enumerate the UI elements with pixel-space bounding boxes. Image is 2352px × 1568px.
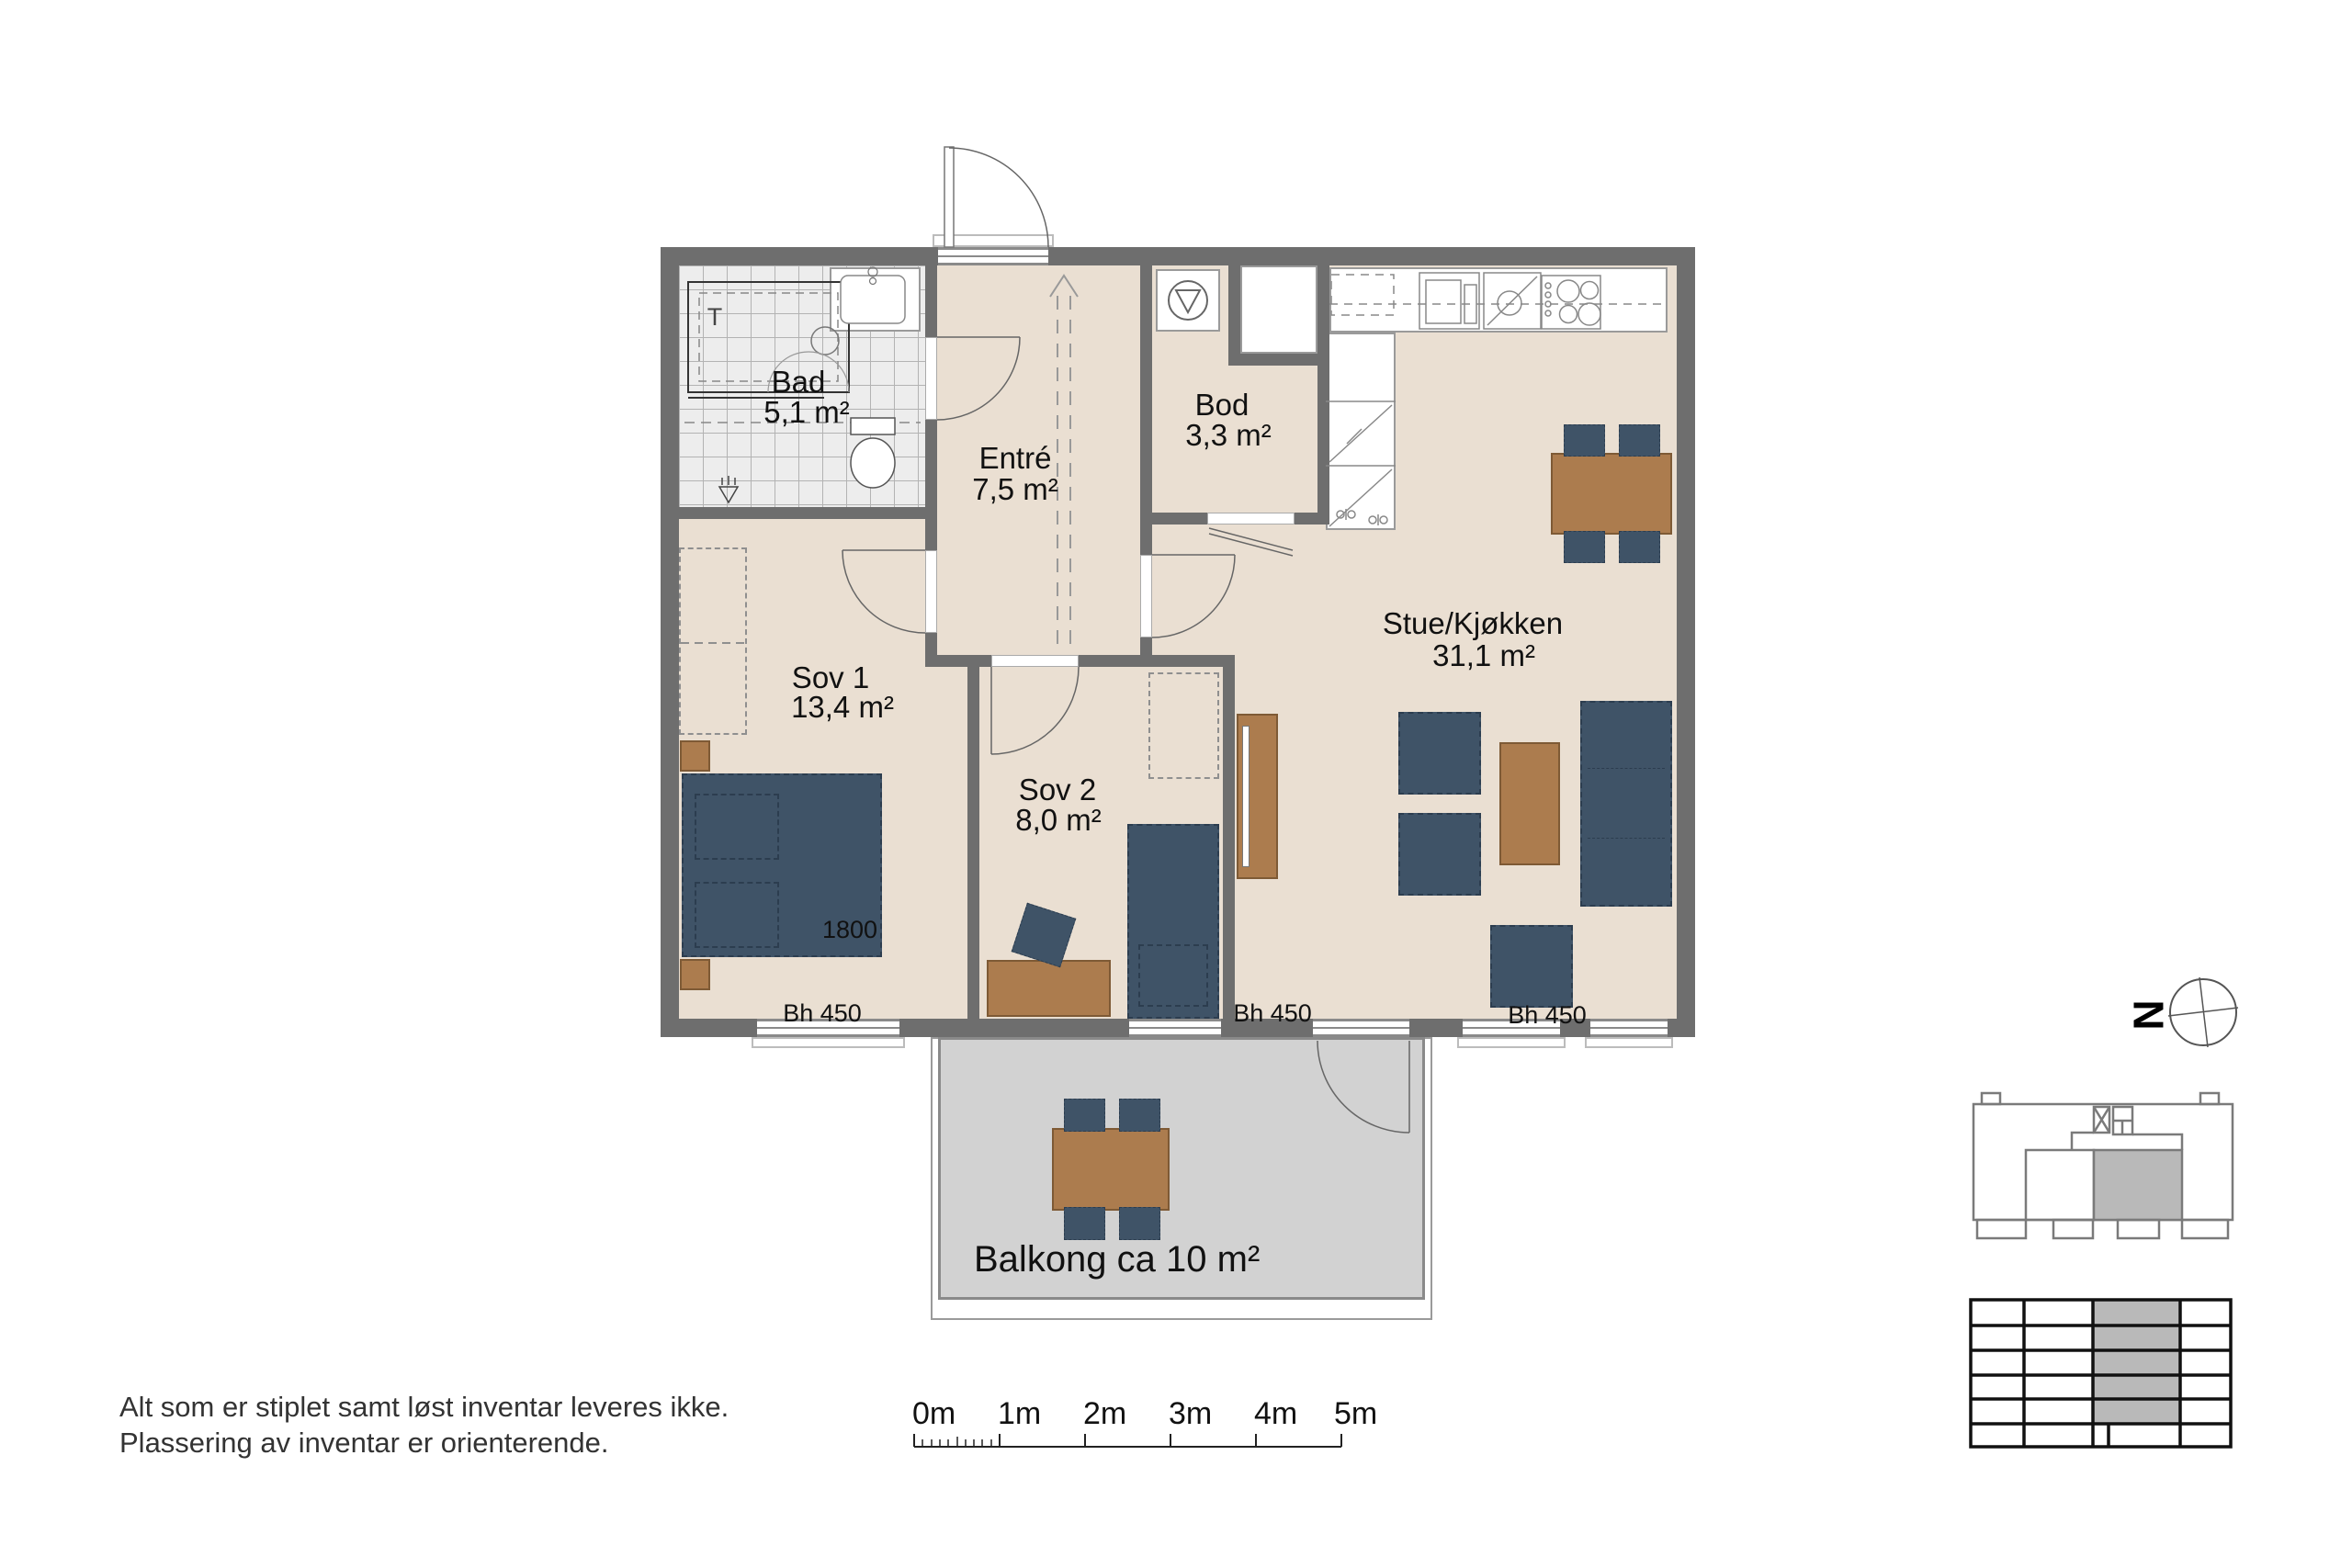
scale-label-3m: 3m	[1169, 1396, 1212, 1432]
sill-height-label: Bh 450	[783, 1000, 862, 1026]
balcony-chair	[1119, 1207, 1160, 1240]
key-plan	[1973, 1093, 2233, 1238]
wall-bad-bottom	[679, 507, 937, 519]
scale-bar-ticks	[914, 1434, 1341, 1447]
window-sill	[1457, 1037, 1566, 1048]
wall-bod-right	[1317, 265, 1329, 525]
balcony-chair	[1064, 1207, 1105, 1240]
window-sill	[752, 1037, 905, 1048]
wall-sov2-stue	[1223, 655, 1235, 1019]
window-sill	[1585, 1037, 1673, 1048]
dining-chair	[1619, 531, 1660, 563]
sofa-cushion-line	[1588, 838, 1665, 839]
room-area-entre: 7,5 m²	[972, 474, 1058, 506]
north-label: N	[2124, 999, 2174, 1030]
wall-ext-bottom	[661, 1019, 757, 1037]
room-label-bod: Bod	[1195, 389, 1249, 422]
room-area-sov2: 8,0 m²	[1015, 805, 1102, 837]
armchair	[1398, 813, 1481, 896]
room-area-sov1: 13,4 m²	[791, 692, 894, 724]
balcony-label: Balkong ca 10 m²	[974, 1239, 1260, 1280]
wall-bad-right	[925, 265, 937, 337]
stacking-diagram	[1971, 1300, 2231, 1447]
nightstand	[680, 740, 710, 772]
window-stue	[1590, 1019, 1668, 1037]
scale-label-0m: 0m	[912, 1396, 955, 1432]
compass-icon	[2168, 977, 2238, 1047]
room-area-bod: 3,3 m²	[1185, 420, 1272, 452]
scale-label-5m: 5m	[1334, 1396, 1377, 1432]
wall-ext-right	[1677, 247, 1695, 1037]
window-sov2	[1129, 1019, 1221, 1037]
wall-ext-bottom	[899, 1019, 1129, 1037]
wardrobe-dashed	[1148, 672, 1219, 779]
armchair	[1398, 712, 1481, 795]
bed-dimension-label: 1800	[822, 917, 877, 942]
door-opening-bad	[925, 337, 937, 420]
entrance-stoop	[933, 234, 1054, 247]
wall-shaft	[1228, 354, 1317, 366]
scale-label-1m: 1m	[998, 1396, 1041, 1432]
wardrobe-dashed	[679, 547, 747, 735]
room-label-stue: Stue/Kjøkken	[1383, 608, 1563, 640]
wall-ext-top	[1048, 247, 1695, 265]
bed-pillow	[1138, 944, 1208, 1007]
desk	[987, 960, 1111, 1017]
scale-label-2m: 2m	[1083, 1396, 1126, 1432]
disclaimer-line-2: Plassering av inventar er orienterende.	[119, 1427, 608, 1460]
balcony-table	[1052, 1128, 1170, 1211]
sill-height-label: Bh 450	[1233, 1000, 1312, 1026]
washing-machine	[1156, 269, 1220, 332]
wall-entre-bod	[1140, 637, 1152, 655]
door-opening-stue	[1140, 555, 1152, 637]
scale-label-4m: 4m	[1254, 1396, 1297, 1432]
wall-bod-bottom	[1295, 513, 1329, 525]
sofa-cushion-line	[1588, 768, 1665, 769]
balcony-chair	[1119, 1099, 1160, 1132]
sill-height-label: Bh 450	[1508, 1002, 1587, 1028]
shower-mixer-label: T	[707, 304, 723, 330]
nightstand	[680, 959, 710, 990]
wall-bad-right	[925, 420, 937, 550]
technical-shaft	[1240, 265, 1317, 354]
wall-entre-bottom	[1079, 655, 1235, 667]
dining-chair	[1564, 424, 1605, 457]
sofa	[1580, 701, 1672, 907]
room-area-bad: 5,1 m²	[763, 397, 850, 429]
room-label-entre: Entré	[979, 443, 1052, 475]
balcony-chair	[1064, 1099, 1105, 1132]
room-label-sov2: Sov 2	[1019, 774, 1096, 807]
wall-ext-top	[661, 247, 938, 265]
wall-bod-bottom	[1152, 513, 1207, 525]
kitchen-tall-cabinets	[1326, 333, 1396, 530]
coffee-table	[1499, 742, 1560, 865]
bathroom-vanity	[830, 267, 921, 332]
room-label-bad: Bad	[772, 367, 826, 399]
wall-bad-right	[925, 633, 937, 655]
wall-entre-bottom	[925, 655, 991, 667]
armchair	[1490, 925, 1573, 1008]
door-opening-sov1	[925, 550, 937, 633]
dining-chair	[1619, 424, 1660, 457]
disclaimer-line-1: Alt som er stiplet samt løst inventar le…	[119, 1391, 729, 1424]
wall-shaft	[1228, 265, 1240, 366]
door-opening-sov2	[991, 655, 1079, 667]
room-area-stue: 31,1 m²	[1432, 640, 1535, 672]
wall-ext-left	[661, 247, 679, 1037]
floor-plan-page: Bad 5,1 m² Entré 7,5 m² Bod 3,3 m² Sov 1…	[0, 0, 2352, 1568]
kitchen-counter	[1329, 267, 1668, 333]
bed-pillow	[695, 794, 779, 860]
entrance-threshold	[938, 247, 1048, 265]
dining-chair	[1564, 531, 1605, 563]
dining-table	[1551, 453, 1672, 535]
wall-sov1-sov2	[967, 667, 979, 1019]
balcony-door-threshold	[1313, 1019, 1409, 1037]
wall-entre-bod	[1140, 265, 1152, 555]
door-opening-bod	[1207, 513, 1295, 525]
tv	[1242, 726, 1249, 867]
bed-pillow	[695, 882, 779, 948]
wall-ext-bottom	[1409, 1019, 1463, 1037]
wall-ext-bottom	[1668, 1019, 1695, 1037]
